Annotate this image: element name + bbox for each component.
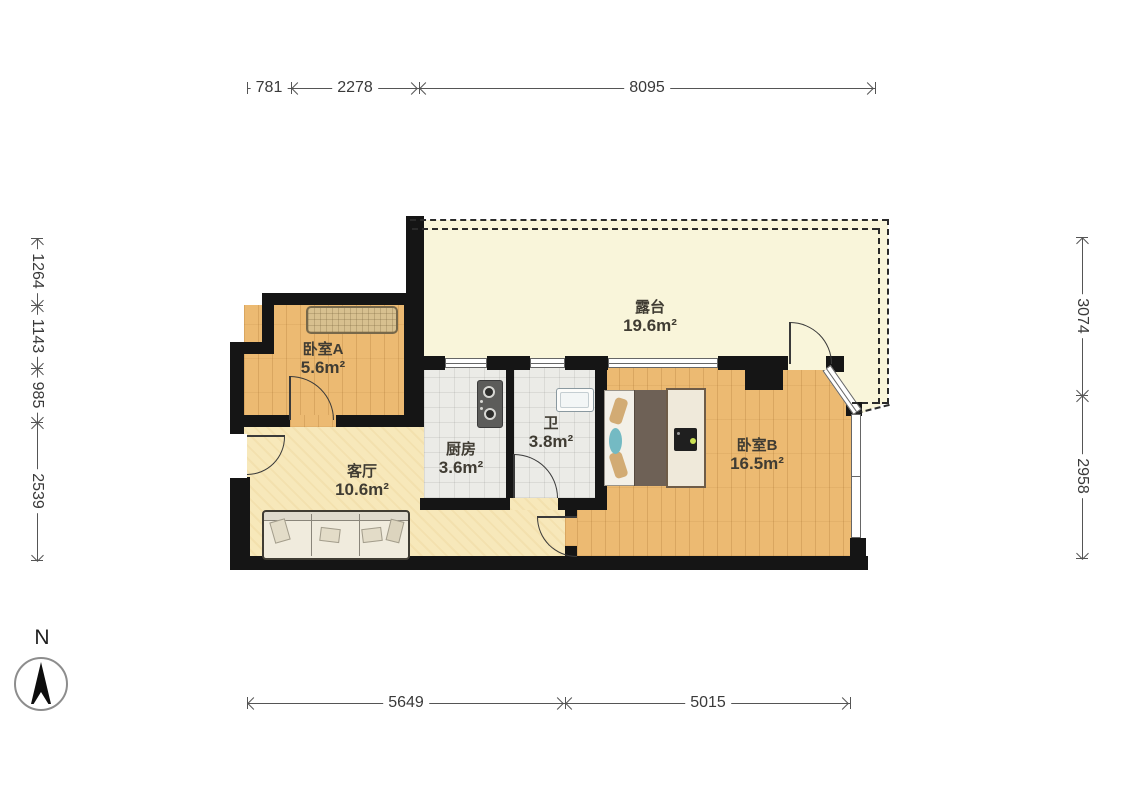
wall-bedroom-a-top	[262, 293, 420, 305]
stove-burner	[484, 408, 496, 420]
room-label-bedroom-b: 卧室B 16.5m²	[707, 437, 807, 473]
dim-top-8095: 8095	[624, 79, 670, 97]
terrace-dashed-bottom-connector	[852, 402, 888, 404]
bed-blanket	[634, 390, 666, 486]
compass-north-label: N	[29, 626, 55, 650]
terrace-dashed-right-outer	[887, 219, 889, 404]
bath-door-opening	[510, 498, 558, 510]
window-bedroom-b-top	[608, 358, 718, 368]
terrace-dashed-right-inner	[878, 228, 880, 404]
dim-top-2278: 2278	[332, 79, 378, 97]
dim-arrow	[31, 422, 44, 435]
stove-burner	[483, 386, 495, 398]
sofa-seat-divider	[311, 514, 312, 556]
wall-top-band-3	[565, 356, 608, 370]
dim-arrow	[1076, 395, 1089, 408]
sofa-back	[264, 512, 408, 521]
wall-bedroom-a-bottom-right	[336, 415, 424, 427]
bedside-stool	[609, 428, 622, 454]
compass-needle-notch	[33, 692, 49, 705]
dim-tick	[875, 82, 876, 94]
tv-power-dot	[690, 438, 696, 444]
room-label-bath: 卫 3.8m²	[501, 415, 601, 451]
room-area-bath: 3.8m²	[501, 432, 601, 451]
stove-knob	[480, 407, 483, 410]
room-area-terrace: 19.6m²	[600, 316, 700, 335]
sofa-pillow	[361, 527, 383, 543]
bedroom-a-bed	[306, 306, 398, 334]
wall-top-band-1	[420, 356, 445, 370]
sofa-seat-divider	[359, 514, 360, 556]
wall-bedroom-a-bottom-left	[233, 415, 290, 427]
room-name-terrace: 露台	[600, 299, 700, 316]
wall-right-bottom-corner	[850, 538, 866, 558]
dim-arrow	[836, 697, 849, 710]
sofa-pillow	[386, 519, 405, 544]
room-name-bedroom-b: 卧室B	[707, 437, 807, 454]
dim-arrow	[405, 82, 418, 95]
dim-arrow	[861, 82, 874, 95]
wall-top-band-2	[487, 356, 530, 370]
room-area-kitchen: 3.6m²	[411, 458, 511, 477]
room-name-bedroom-a: 卧室A	[273, 341, 373, 358]
dim-tick	[850, 697, 851, 709]
room-label-bedroom-a: 卧室A 5.6m²	[273, 341, 373, 377]
dim-left-985: 985	[28, 378, 46, 413]
dim-bottom-5015: 5015	[685, 694, 731, 712]
tv-led-dot	[677, 432, 680, 435]
floor-plan-canvas: 卧室A 5.6m² 客厅 10.6m² 厨房 3.6m² 卫 3.8m² 卧室B…	[0, 0, 1125, 800]
terrace-dashed-top-inner	[412, 228, 878, 230]
dim-tick	[247, 82, 248, 94]
dim-arrow	[291, 82, 304, 95]
room-label-terrace: 露台 19.6m²	[600, 299, 700, 335]
window-bedroom-b-right	[851, 414, 861, 538]
bath-fixture-inner	[560, 392, 589, 408]
dim-arrow	[1076, 237, 1089, 250]
dim-right-3074: 3074	[1073, 294, 1091, 338]
room-name-kitchen: 厨房	[411, 441, 511, 458]
room-label-kitchen: 厨房 3.6m²	[411, 441, 511, 477]
dim-arrow	[247, 697, 260, 710]
dim-arrow	[565, 697, 578, 710]
room-area-living: 10.6m²	[312, 480, 412, 499]
bath-fixture	[556, 388, 594, 412]
wall-kitchen-bottom	[420, 498, 510, 510]
sofa-pillow	[319, 527, 341, 543]
wall-left-lower	[230, 477, 250, 562]
dim-bottom-line	[247, 703, 850, 704]
dim-arrow	[551, 697, 564, 710]
wall-top-band-4	[718, 356, 788, 370]
dim-left-1264: 1264	[28, 249, 46, 293]
window-bath-top	[530, 358, 565, 368]
entry-door-opening	[230, 434, 247, 478]
sofa	[262, 510, 410, 560]
room-area-bedroom-a: 5.6m²	[273, 358, 373, 377]
window-kitchen-top	[445, 358, 487, 368]
wall-pillar-bedroom-b	[745, 370, 783, 390]
dim-arrow	[419, 82, 432, 95]
dim-bottom-5649: 5649	[383, 694, 429, 712]
dim-left-2539: 2539	[28, 469, 46, 513]
room-label-living: 客厅 10.6m²	[312, 463, 412, 499]
stove-knob	[480, 400, 483, 403]
room-name-bath: 卫	[501, 415, 601, 432]
dim-left-1143: 1143	[28, 315, 46, 357]
sofa-pillow	[269, 518, 290, 544]
room-name-living: 客厅	[312, 463, 412, 480]
room-area-bedroom-b: 16.5m²	[707, 454, 807, 473]
dim-right-2958: 2958	[1073, 454, 1091, 498]
terrace-dashed-top-outer	[410, 219, 888, 221]
dim-top-781: 781	[251, 79, 288, 97]
